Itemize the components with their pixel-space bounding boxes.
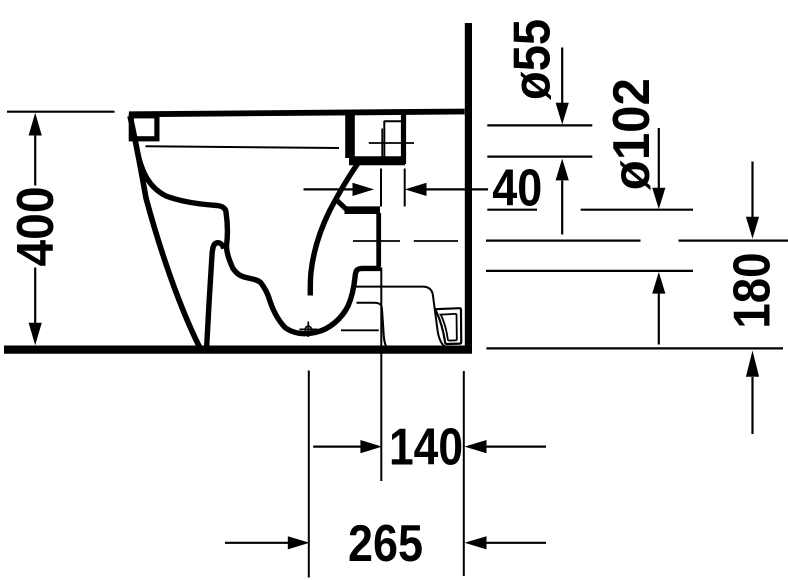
svg-text:180: 180 xyxy=(724,253,782,329)
svg-text:400: 400 xyxy=(7,187,65,267)
svg-text:140: 140 xyxy=(389,418,463,476)
svg-text:40: 40 xyxy=(492,159,542,217)
svg-text:ø102: ø102 xyxy=(603,78,661,190)
svg-text:ø55: ø55 xyxy=(503,19,561,100)
svg-text:265: 265 xyxy=(348,515,423,573)
